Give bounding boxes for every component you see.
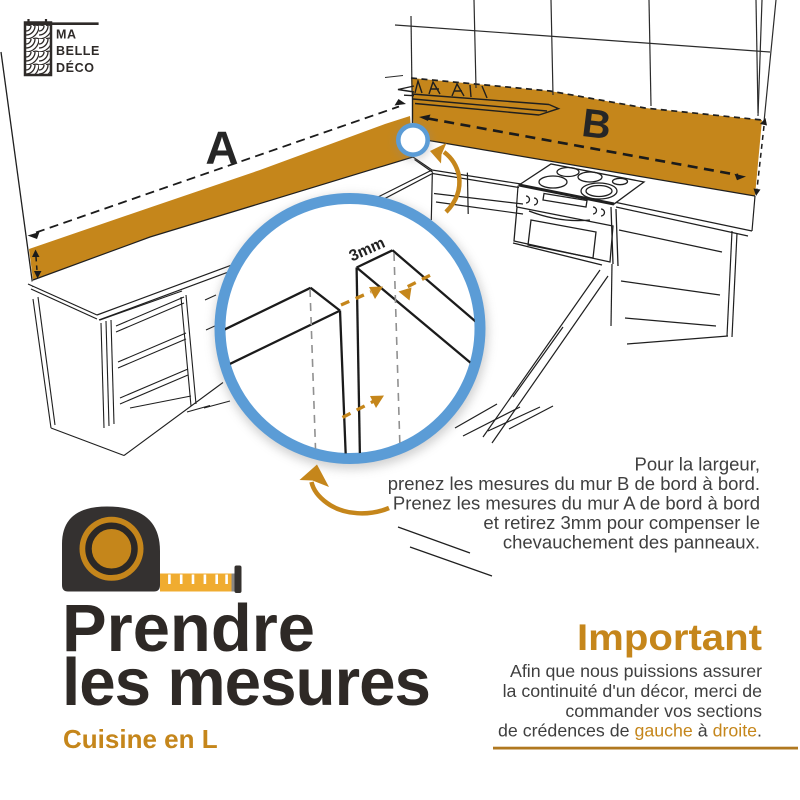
svg-text:Pour la largeur,: Pour la largeur, (635, 454, 760, 475)
svg-text:chevauchement des panneaux.: chevauchement des panneaux. (503, 532, 760, 553)
svg-text:de crédences de gauche à droit: de crédences de gauche à droite. (498, 721, 762, 741)
svg-text:commander vos sections: commander vos sections (565, 701, 762, 721)
svg-text:MA: MA (56, 27, 77, 41)
svg-text:Important: Important (577, 617, 762, 658)
svg-text:A: A (205, 122, 238, 174)
svg-text:B: B (580, 101, 614, 148)
svg-text:les mesures: les mesures (62, 645, 430, 720)
svg-text:prenez les mesures du mur B de: prenez les mesures du mur B de bord à bo… (388, 473, 760, 494)
svg-text:Prenez les mesures du mur A de: Prenez les mesures du mur A de bord à bo… (393, 493, 760, 514)
svg-text:Cuisine en L: Cuisine en L (63, 724, 218, 754)
svg-text:et retirez 3mm pour compenser: et retirez 3mm pour compenser le (483, 512, 760, 533)
svg-text:BELLE: BELLE (56, 44, 100, 58)
svg-text:la continuité d'un décor, merc: la continuité d'un décor, merci de (503, 681, 763, 701)
svg-text:DÉCO: DÉCO (56, 60, 95, 75)
svg-text:Afin que nous puissions assure: Afin que nous puissions assurer (510, 661, 762, 681)
